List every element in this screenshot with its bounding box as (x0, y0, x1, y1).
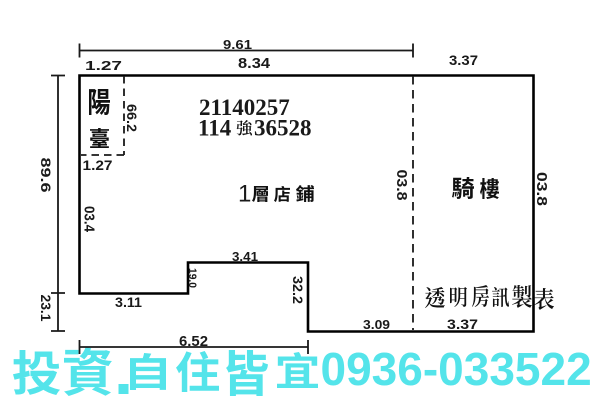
svg-text:36528: 36528 (254, 116, 312, 141)
svg-text:32.2: 32.2 (290, 276, 306, 304)
svg-text:114: 114 (198, 116, 232, 141)
svg-text:89.6: 89.6 (38, 158, 54, 193)
svg-text:1.27: 1.27 (85, 58, 122, 73)
svg-text:3.09: 3.09 (363, 317, 390, 332)
svg-text:19.0: 19.0 (186, 268, 198, 288)
svg-text:1.27: 1.27 (83, 157, 113, 173)
svg-text:3.11: 3.11 (115, 294, 142, 310)
svg-text:3.37: 3.37 (447, 316, 478, 332)
svg-text:66.2: 66.2 (124, 104, 140, 132)
svg-text:23.1: 23.1 (38, 295, 54, 322)
svg-text:1: 1 (238, 181, 251, 208)
svg-text:8.34: 8.34 (238, 55, 271, 72)
svg-text:03.8: 03.8 (533, 172, 549, 206)
svg-text:03.8: 03.8 (393, 170, 409, 201)
svg-text:3.37: 3.37 (449, 52, 478, 68)
svg-text:03.4: 03.4 (81, 206, 98, 233)
svg-text:0936-033522: 0936-033522 (321, 343, 592, 395)
svg-text:9.61: 9.61 (223, 37, 252, 52)
svg-text:3.41: 3.41 (232, 249, 258, 264)
